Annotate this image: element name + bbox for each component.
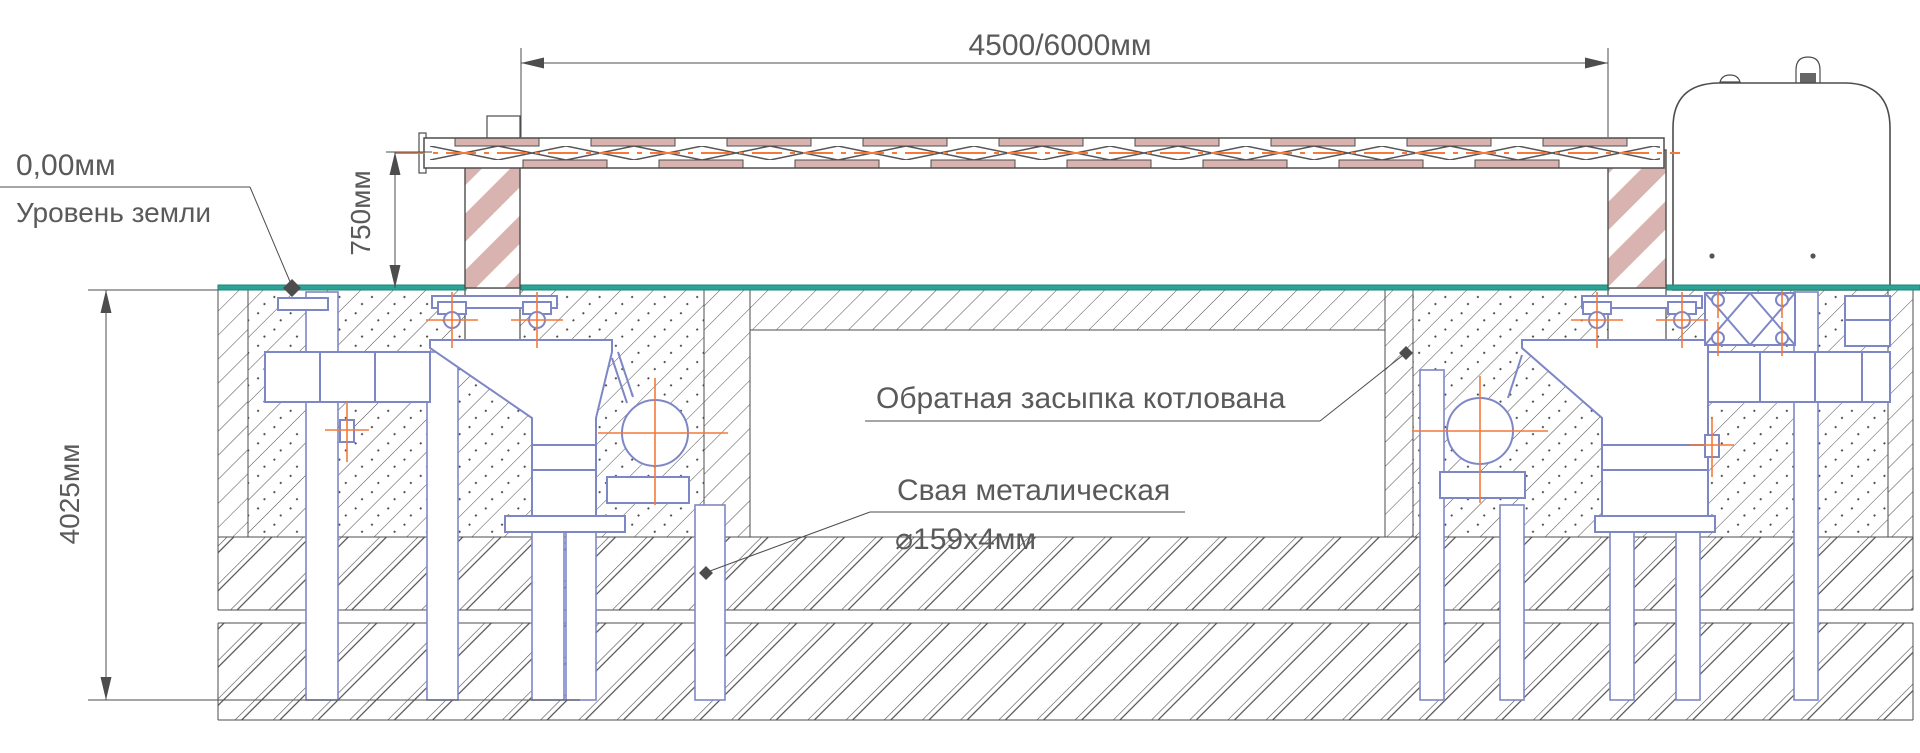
boom-arm: [395, 116, 1680, 173]
pile: [1500, 505, 1524, 700]
pile-spec-text: ⌀159x4мм: [895, 523, 1036, 556]
arrow-up-icon: [101, 290, 112, 313]
pit-top-band: [750, 290, 1385, 330]
drawing-canvas: 4500/6000мм 750мм 4025мм 0,00мм Уровень …: [0, 0, 1920, 753]
ground-level-text: Уровень земли: [16, 197, 211, 228]
pile-material-text: Свая металическая: [897, 474, 1170, 507]
cabinet-body: [1673, 83, 1890, 290]
pit-wall-strip: [218, 290, 248, 537]
cabinet-screw: [1709, 253, 1714, 258]
dim-opening-width-text: 4500/6000мм: [968, 29, 1151, 62]
post-right-stripes: [1608, 150, 1666, 288]
arrow-down-icon: [101, 677, 112, 700]
cabinet-knob: [1720, 75, 1740, 82]
post-left: [465, 150, 520, 288]
dim-boom-height-text: 750мм: [345, 170, 376, 255]
pile: [1420, 370, 1444, 700]
dim-foundation-depth-text: 4025мм: [54, 444, 85, 545]
post-left-stripes: [465, 150, 520, 288]
pile: [695, 505, 725, 700]
boom-bracket: [487, 116, 520, 140]
backfill-text: Обратная засыпка котлована: [876, 382, 1286, 415]
cabinet: [1673, 57, 1890, 290]
bottom-soil-layer: [218, 623, 1913, 720]
barrier-foundation-drawing: 4500/6000мм 750мм 4025мм 0,00мм Уровень …: [0, 0, 1920, 753]
dim-opening-width: 4500/6000мм: [521, 29, 1608, 137]
arrow-left-icon: [521, 58, 544, 69]
post-right: [1608, 150, 1666, 288]
arrow-right-icon: [1585, 58, 1608, 69]
cabinet-screw: [1810, 253, 1815, 258]
pit-wall-strip: [1385, 290, 1413, 537]
pile: [427, 352, 458, 700]
elevation-text: 0,00мм: [16, 149, 116, 182]
label-ground-level: 0,00мм Уровень земли: [0, 149, 301, 297]
label-backfill: Обратная засыпка котлована: [865, 346, 1413, 421]
deep-soil-band: [218, 537, 1913, 610]
pit-wall-strip: [704, 290, 750, 537]
arrow-up-icon: [390, 152, 401, 175]
pit-wall-strip: [1888, 290, 1913, 537]
